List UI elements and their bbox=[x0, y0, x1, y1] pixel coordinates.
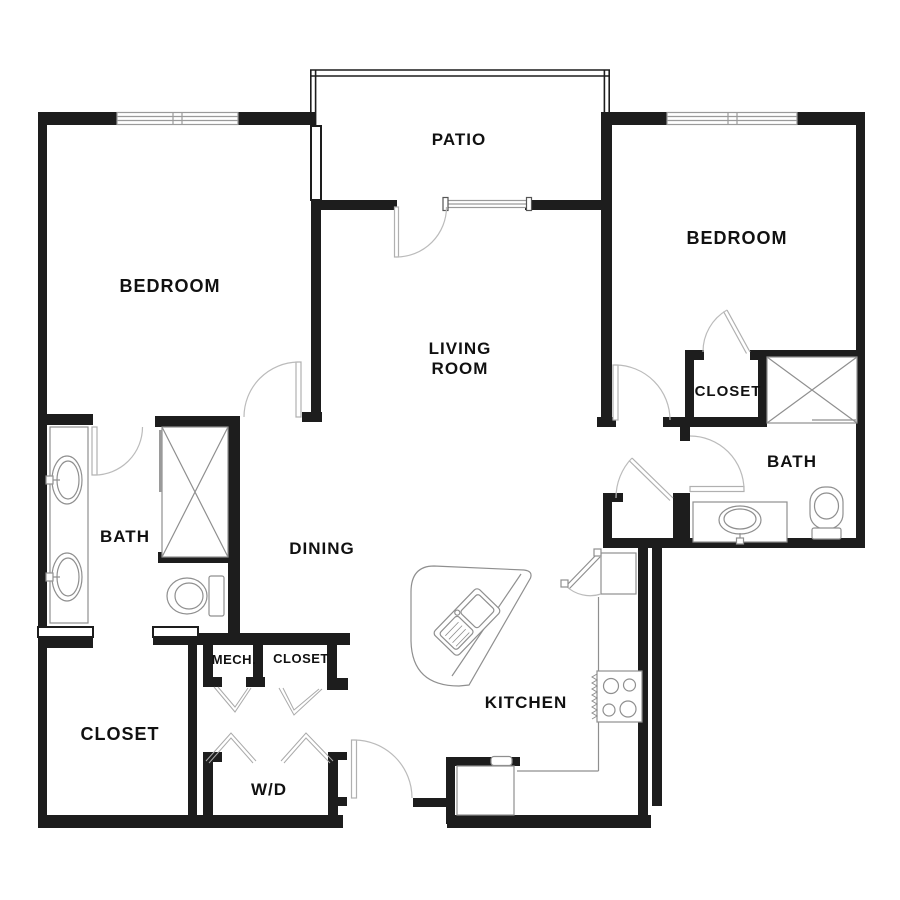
corner-pantry bbox=[561, 549, 636, 596]
kitchen-island bbox=[411, 566, 531, 686]
room-label-kitchen: KITCHEN bbox=[485, 693, 568, 712]
washer-dryer-bifold-doors bbox=[206, 733, 333, 763]
patio-railing bbox=[310, 70, 610, 126]
entry-door-swing bbox=[352, 740, 413, 798]
sliding-glass-door bbox=[443, 198, 532, 211]
toilet-left bbox=[167, 576, 224, 616]
vanity-right bbox=[693, 502, 787, 544]
bedroom-right-door-swing bbox=[613, 365, 670, 420]
hall-closet-bifold-doors bbox=[279, 688, 322, 715]
mech-bifold-doors bbox=[214, 687, 251, 712]
kitchen-counter bbox=[517, 597, 599, 771]
room-label-bedroom-right: BEDROOM bbox=[687, 228, 788, 248]
toilet-right bbox=[810, 487, 843, 539]
patio-door-swing bbox=[395, 207, 447, 257]
room-label-mech: MECH. bbox=[212, 652, 256, 667]
room-label-living-1: LIVING bbox=[429, 339, 492, 358]
room-label-dining: DINING bbox=[289, 539, 355, 558]
room-label-closet-right: CLOSET bbox=[695, 383, 762, 400]
window-bedroom-left bbox=[117, 113, 238, 125]
floor-plan-canvas: PATIO BEDROOM BEDROOM LIVING ROOM CLOSET… bbox=[0, 0, 900, 900]
room-label-closet-hall: CLOSET bbox=[273, 651, 329, 666]
room-label-living-2: ROOM bbox=[432, 359, 489, 378]
hall-closet-door-swing bbox=[616, 458, 673, 501]
closet-right-door-swing bbox=[703, 310, 750, 354]
room-label-bedroom-left: BEDROOM bbox=[120, 276, 221, 296]
room-label-bath-right: BATH bbox=[767, 452, 817, 471]
window-bedroom-right bbox=[667, 113, 797, 125]
windows bbox=[117, 113, 797, 211]
bath-left-door-swing bbox=[92, 427, 143, 475]
bedroom-left-door-swing bbox=[244, 362, 301, 417]
room-label-patio: PATIO bbox=[432, 130, 486, 149]
shower-left bbox=[161, 427, 229, 557]
double-sink-vanity bbox=[46, 427, 88, 623]
bath-right-door-swing bbox=[690, 436, 744, 492]
range-stove bbox=[592, 671, 642, 722]
room-label-bath-left: BATH bbox=[100, 527, 150, 546]
room-label-closet-master: CLOSET bbox=[80, 724, 159, 744]
room-label-washer-dryer: W/D bbox=[251, 780, 287, 799]
floor-plan: PATIO BEDROOM BEDROOM LIVING ROOM CLOSET… bbox=[0, 0, 900, 900]
shower-right bbox=[767, 357, 857, 423]
